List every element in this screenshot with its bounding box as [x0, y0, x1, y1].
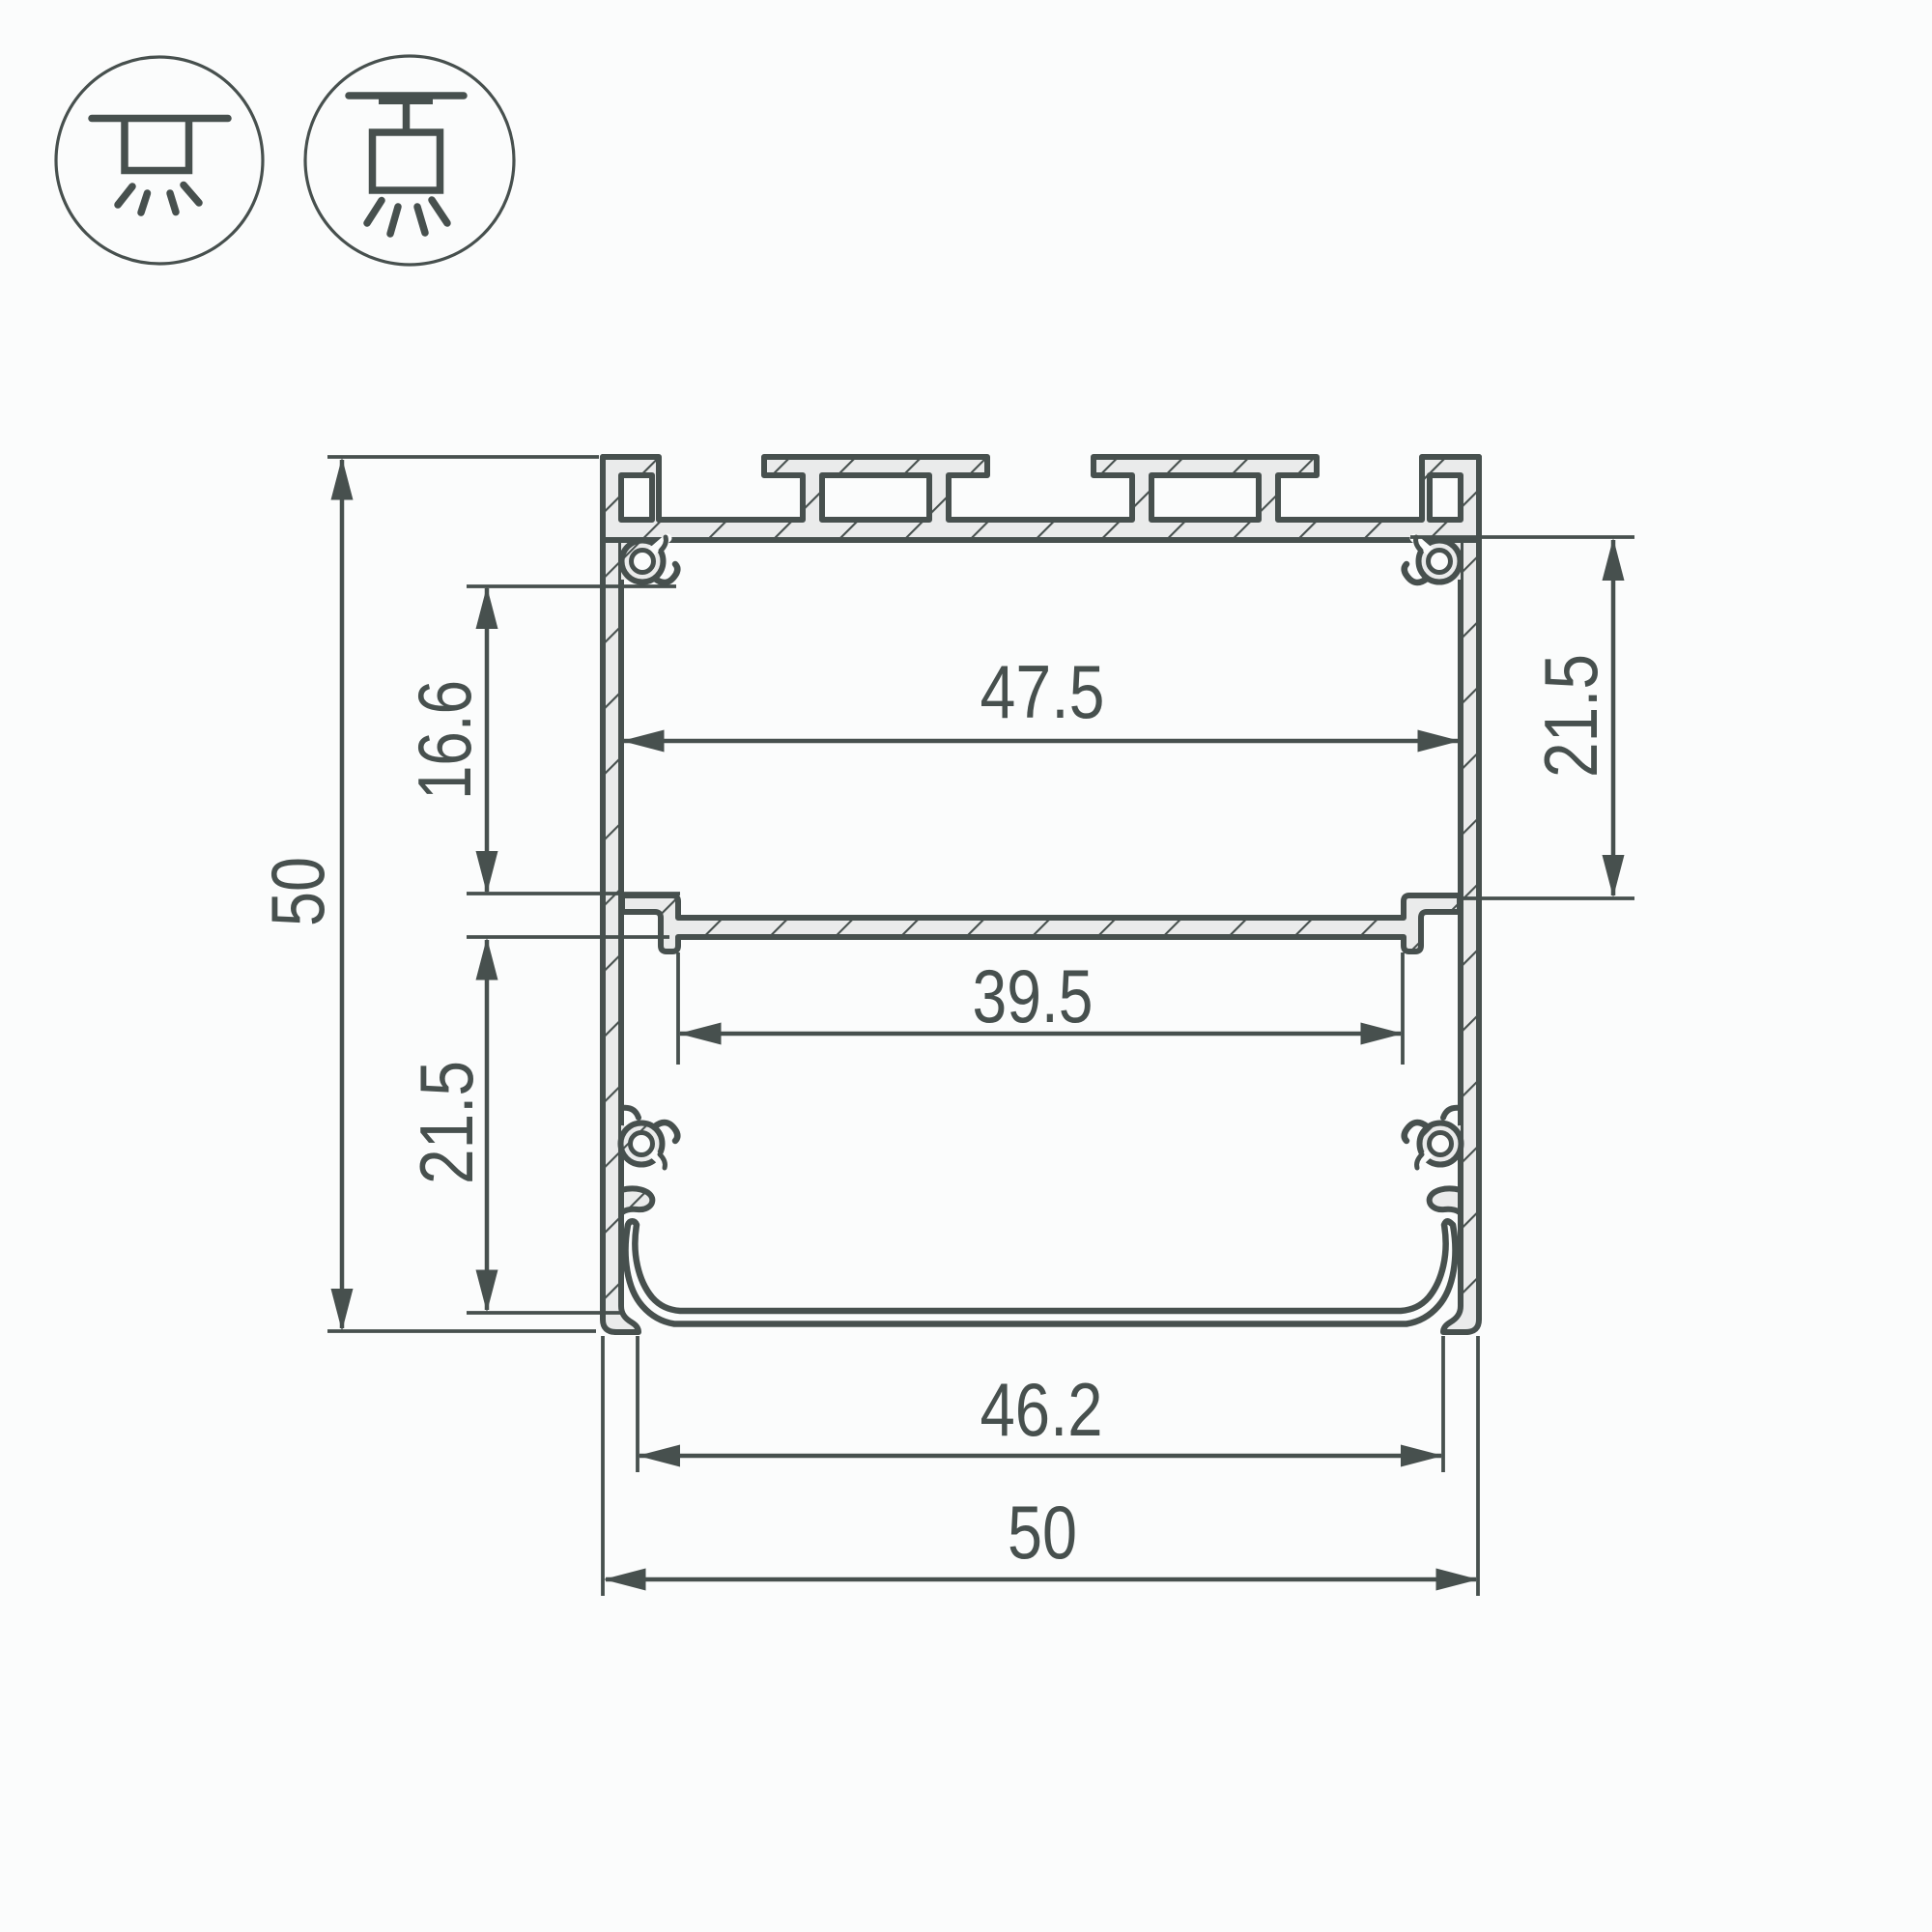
svg-text:47.5: 47.5	[980, 649, 1105, 734]
svg-text:16.6: 16.6	[402, 680, 487, 800]
svg-text:50: 50	[1008, 1490, 1077, 1575]
svg-text:21.5: 21.5	[404, 1061, 489, 1184]
svg-text:46.2: 46.2	[980, 1367, 1103, 1452]
svg-text:39.5: 39.5	[973, 953, 1094, 1038]
svg-text:50: 50	[255, 857, 340, 926]
svg-text:21.5: 21.5	[1528, 654, 1613, 778]
